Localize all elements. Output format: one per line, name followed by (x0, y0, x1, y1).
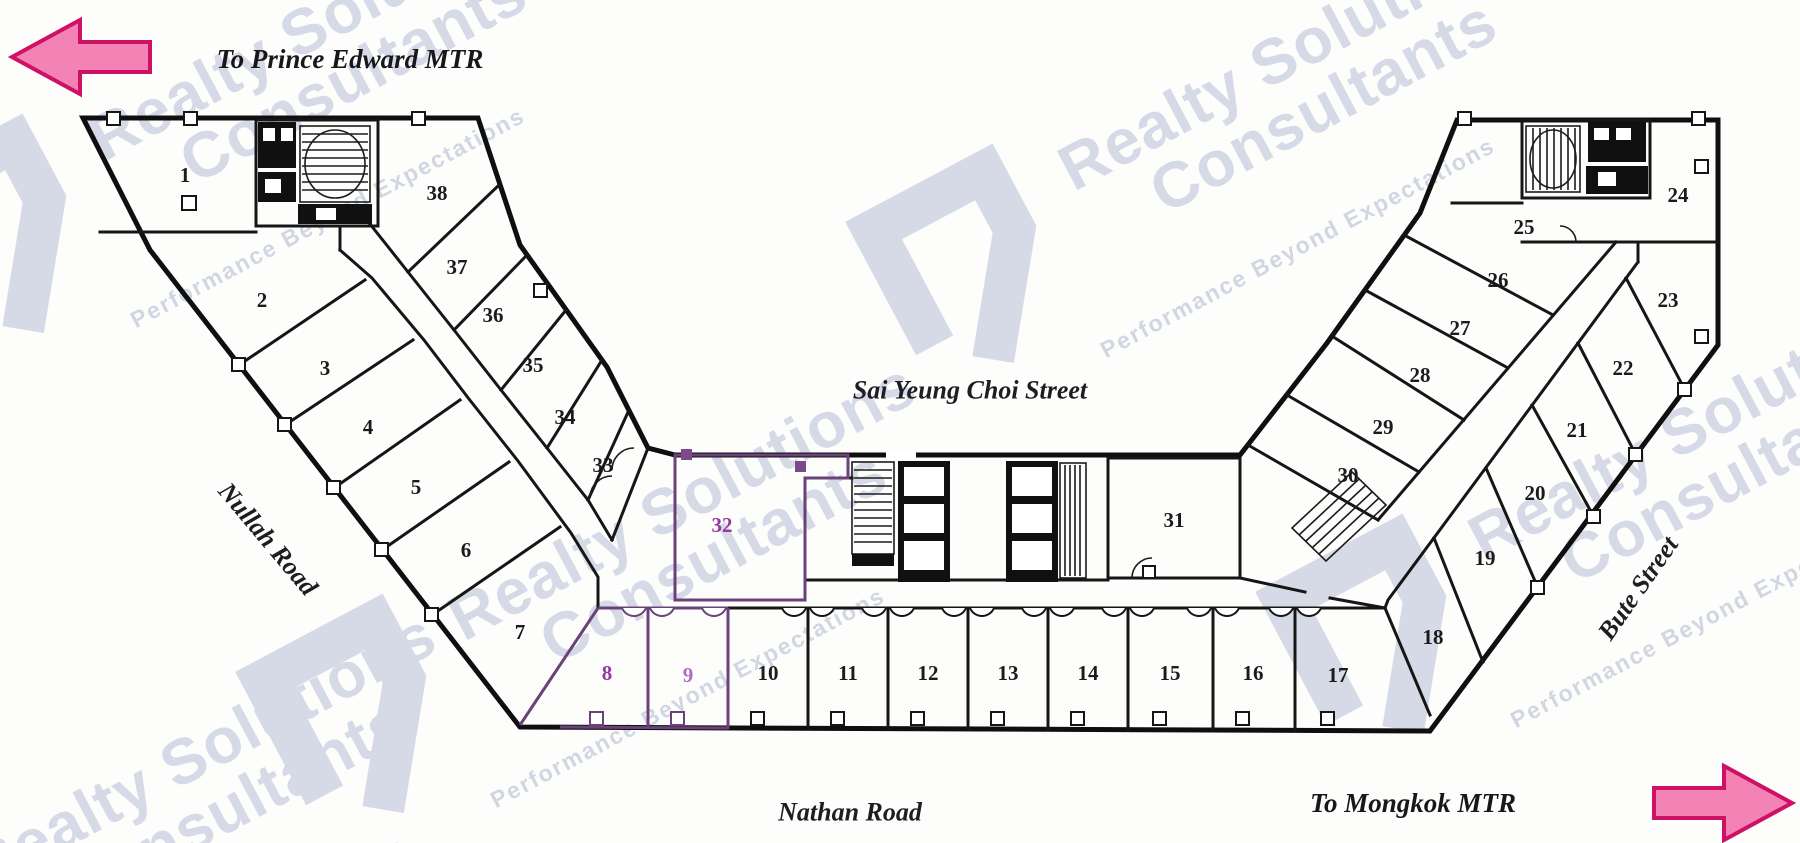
unit-label-28: 28 (1410, 363, 1431, 387)
unit-label-27: 27 (1450, 316, 1471, 340)
floor-plan-svg: 1234567891011121314151617181920212223242… (0, 0, 1800, 843)
unit-label-26: 26 (1488, 268, 1509, 292)
unit-label-3: 3 (320, 356, 331, 380)
stair-core-top-right (1522, 120, 1650, 198)
unit-label-23: 23 (1658, 288, 1679, 312)
unit-label-5: 5 (411, 475, 422, 499)
right-arrow-icon (1654, 766, 1792, 840)
label-to-prince-edward-mtr: To Prince Edward MTR (217, 44, 484, 74)
unit-label-21: 21 (1567, 418, 1588, 442)
unit-label-6: 6 (461, 538, 472, 562)
unit-label-10: 10 (758, 661, 779, 685)
unit-label-1: 1 (180, 163, 191, 187)
unit-label-37: 37 (447, 255, 468, 279)
unit-label-11: 11 (838, 661, 858, 685)
street-label-nathan-road: Nathan Road (777, 798, 923, 827)
floor-plan-page: Realty SolutionsConsultantsPerformance B… (0, 0, 1800, 843)
street-label-nullah-road: Nullah Road (212, 476, 324, 602)
unit-label-36: 36 (483, 303, 504, 327)
unit-label-31: 31 (1164, 508, 1185, 532)
unit-label-30: 30 (1338, 463, 1359, 487)
unit-label-20: 20 (1525, 481, 1546, 505)
unit-label-15: 15 (1160, 661, 1181, 685)
unit-label-14: 14 (1078, 661, 1100, 685)
unit-label-4: 4 (363, 415, 374, 439)
unit-label-33: 33 (593, 453, 614, 477)
unit-label-16: 16 (1243, 661, 1264, 685)
unit-label-34: 34 (555, 405, 577, 429)
unit-label-35: 35 (523, 353, 544, 377)
unit-label-19: 19 (1475, 546, 1496, 570)
unit-label-2: 2 (257, 288, 268, 312)
unit-label-13: 13 (998, 661, 1019, 685)
highlighted-units (520, 449, 848, 729)
street-label-sai-yeung-choi: Sai Yeung Choi Street (853, 376, 1088, 405)
stair-core-top-left (256, 120, 378, 226)
unit-label-12: 12 (918, 661, 939, 685)
left-arrow-icon (12, 20, 150, 94)
unit-label-17: 17 (1328, 663, 1349, 687)
label-to-mongkok-mtr: To Mongkok MTR (1310, 788, 1516, 818)
unit-label-9: 9 (683, 663, 694, 687)
unit-label-24: 24 (1668, 183, 1690, 207)
unit-label-22: 22 (1613, 356, 1634, 380)
unit-label-7: 7 (515, 620, 526, 644)
unit-label-25: 25 (1514, 215, 1535, 239)
unit-label-29: 29 (1373, 415, 1394, 439)
unit-label-18: 18 (1423, 625, 1444, 649)
unit-label-38: 38 (427, 181, 448, 205)
street-label-bute-street: Bute Street (1591, 530, 1684, 646)
unit-label-8: 8 (602, 661, 613, 685)
unit-label-32: 32 (712, 513, 733, 537)
